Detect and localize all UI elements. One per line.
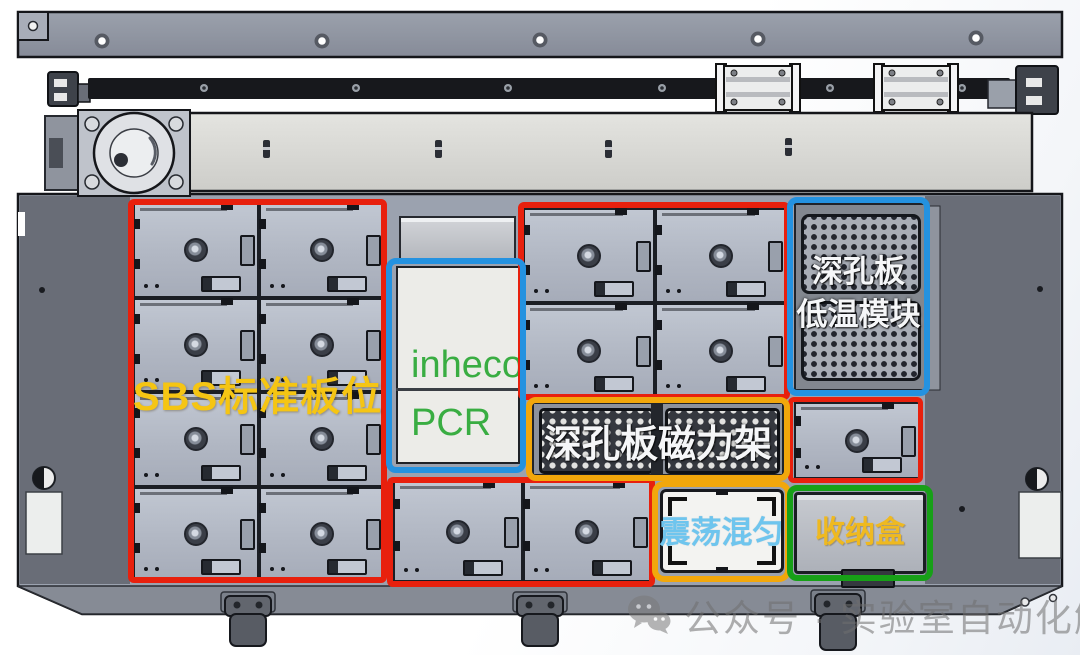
- linear-rail: [48, 64, 1058, 114]
- drive-motor: [45, 110, 190, 196]
- plate-hotel-wedge: [399, 216, 516, 264]
- annotation-box-inheco-pcr: [386, 258, 526, 473]
- top-mounting-bar: [18, 12, 1062, 57]
- magnetic-rack-label: 深孔板磁力架: [526, 426, 790, 464]
- deck-side-plate: [1019, 492, 1061, 558]
- datum-marker: [33, 467, 55, 489]
- shaker-label: 震荡混匀: [652, 517, 791, 548]
- cold-module-label-line2: 低温模块: [787, 299, 930, 330]
- deck-side-plate: [26, 492, 62, 554]
- watermark-text: 公众号 · 实验室自动化解析: [684, 588, 1080, 642]
- rail-carriage: [874, 64, 958, 112]
- annotation-box-bottom-middle: [387, 477, 655, 587]
- datum-marker: [1026, 468, 1048, 490]
- foot-tab: [513, 592, 567, 646]
- gantry-beam: [160, 113, 1032, 191]
- rail-carriage: [716, 64, 800, 112]
- sbs-area-label: SBS标准板位: [128, 377, 387, 417]
- deck-render: inheco PCR SBS标准板位 深孔板 低温模块 深孔板磁力架 震荡混匀 …: [0, 0, 1080, 655]
- annotation-box-right-plate: [788, 397, 923, 483]
- annotation-box-top-middle: [518, 202, 790, 400]
- watermark: 公众号 · 实验室自动化解析: [626, 588, 1080, 642]
- wechat-icon: [626, 594, 672, 636]
- storage-label: 收纳盒: [787, 518, 933, 548]
- cold-module-label-line1: 深孔板: [787, 256, 930, 287]
- foot-tab: [221, 592, 275, 646]
